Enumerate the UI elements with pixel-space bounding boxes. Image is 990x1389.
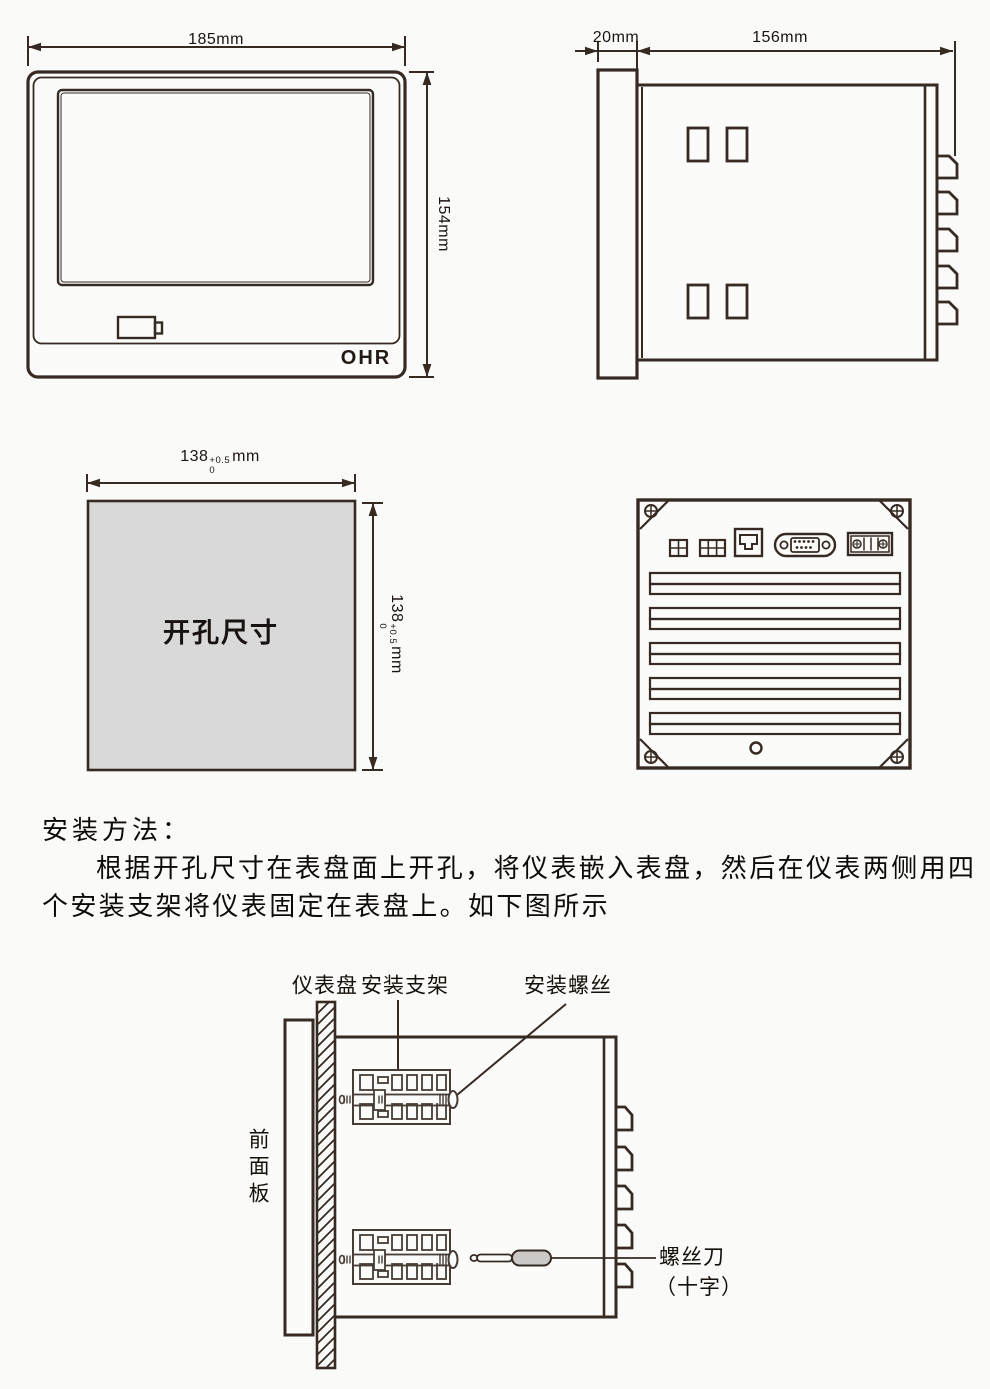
brand-logo: OHR <box>341 347 391 369</box>
side-terminal-bumps <box>937 156 957 324</box>
rear-hole <box>751 743 762 754</box>
mounting-bracket-top <box>340 1070 458 1124</box>
cutout-title: 开孔尺寸 <box>163 619 279 649</box>
side-body <box>637 85 937 360</box>
arrow-right-icon <box>392 43 405 52</box>
install-heading: 安装方法： <box>42 817 192 846</box>
mounting-bracket-bottom <box>340 1230 458 1284</box>
cutout-width-label: 138+0.50mm <box>180 448 260 476</box>
arrow-up-icon <box>423 72 432 85</box>
cutout-width-dimension-line <box>87 474 355 492</box>
front-height-label: 154mm <box>434 196 452 252</box>
screw-label: 安装螺丝 <box>524 974 612 997</box>
install-text-line1: 根据开孔尺寸在表盘面上开孔，将仪表嵌入表盘，然后在仪表两侧用四 <box>96 855 976 884</box>
install-text-line2: 个安装支架将仪表固定在表盘上。如下图所示 <box>42 893 610 922</box>
cutout-unit: mm <box>232 448 260 465</box>
side-depth-label: 156mm <box>752 29 808 47</box>
cutout-height-label: 138+0.50mm <box>377 594 405 674</box>
mounting-panel-hatched <box>317 1002 335 1368</box>
side-bezel-label: 20mm <box>593 29 639 47</box>
screwdriver-type-label: （十字） <box>655 1276 743 1299</box>
front-width-label: 185mm <box>188 31 244 49</box>
cutout-width-value: 138 <box>180 448 208 465</box>
front-height-dimension <box>409 72 434 377</box>
install-terminal-bumps <box>616 1107 632 1287</box>
panel-label: 仪表盘 <box>292 974 358 997</box>
arrow-down-icon <box>423 364 432 377</box>
side-front-bezel <box>598 70 637 378</box>
bracket-label: 安装支架 <box>361 974 449 997</box>
install-diagram-drawing <box>230 950 775 1389</box>
tolerance-lower: 0 <box>209 466 215 476</box>
front-view-drawing <box>0 0 470 400</box>
front-outer-case <box>28 72 405 377</box>
front-panel-shape <box>285 1020 313 1335</box>
front-panel-label: 前面板 <box>246 1128 269 1209</box>
side-view-drawing <box>560 0 990 400</box>
arrow-left-icon <box>28 43 41 52</box>
rear-view-drawing <box>620 485 990 785</box>
page: 185mm 154mm OHR 20mm 156mm 138+0.50mm 13… <box>0 0 990 1389</box>
screwdriver-label: 螺丝刀 <box>659 1246 725 1269</box>
